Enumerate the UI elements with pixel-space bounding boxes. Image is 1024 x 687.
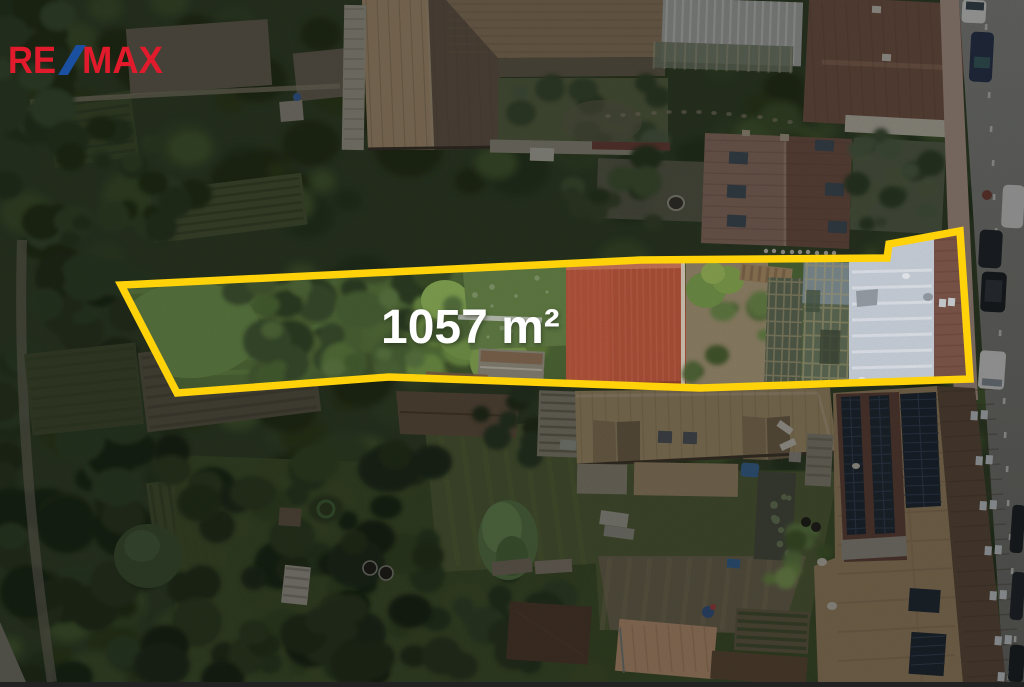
svg-text:RE: RE xyxy=(8,40,56,82)
svg-text:1057 m²: 1057 m² xyxy=(381,301,560,354)
svg-text:MAX: MAX xyxy=(82,40,164,82)
